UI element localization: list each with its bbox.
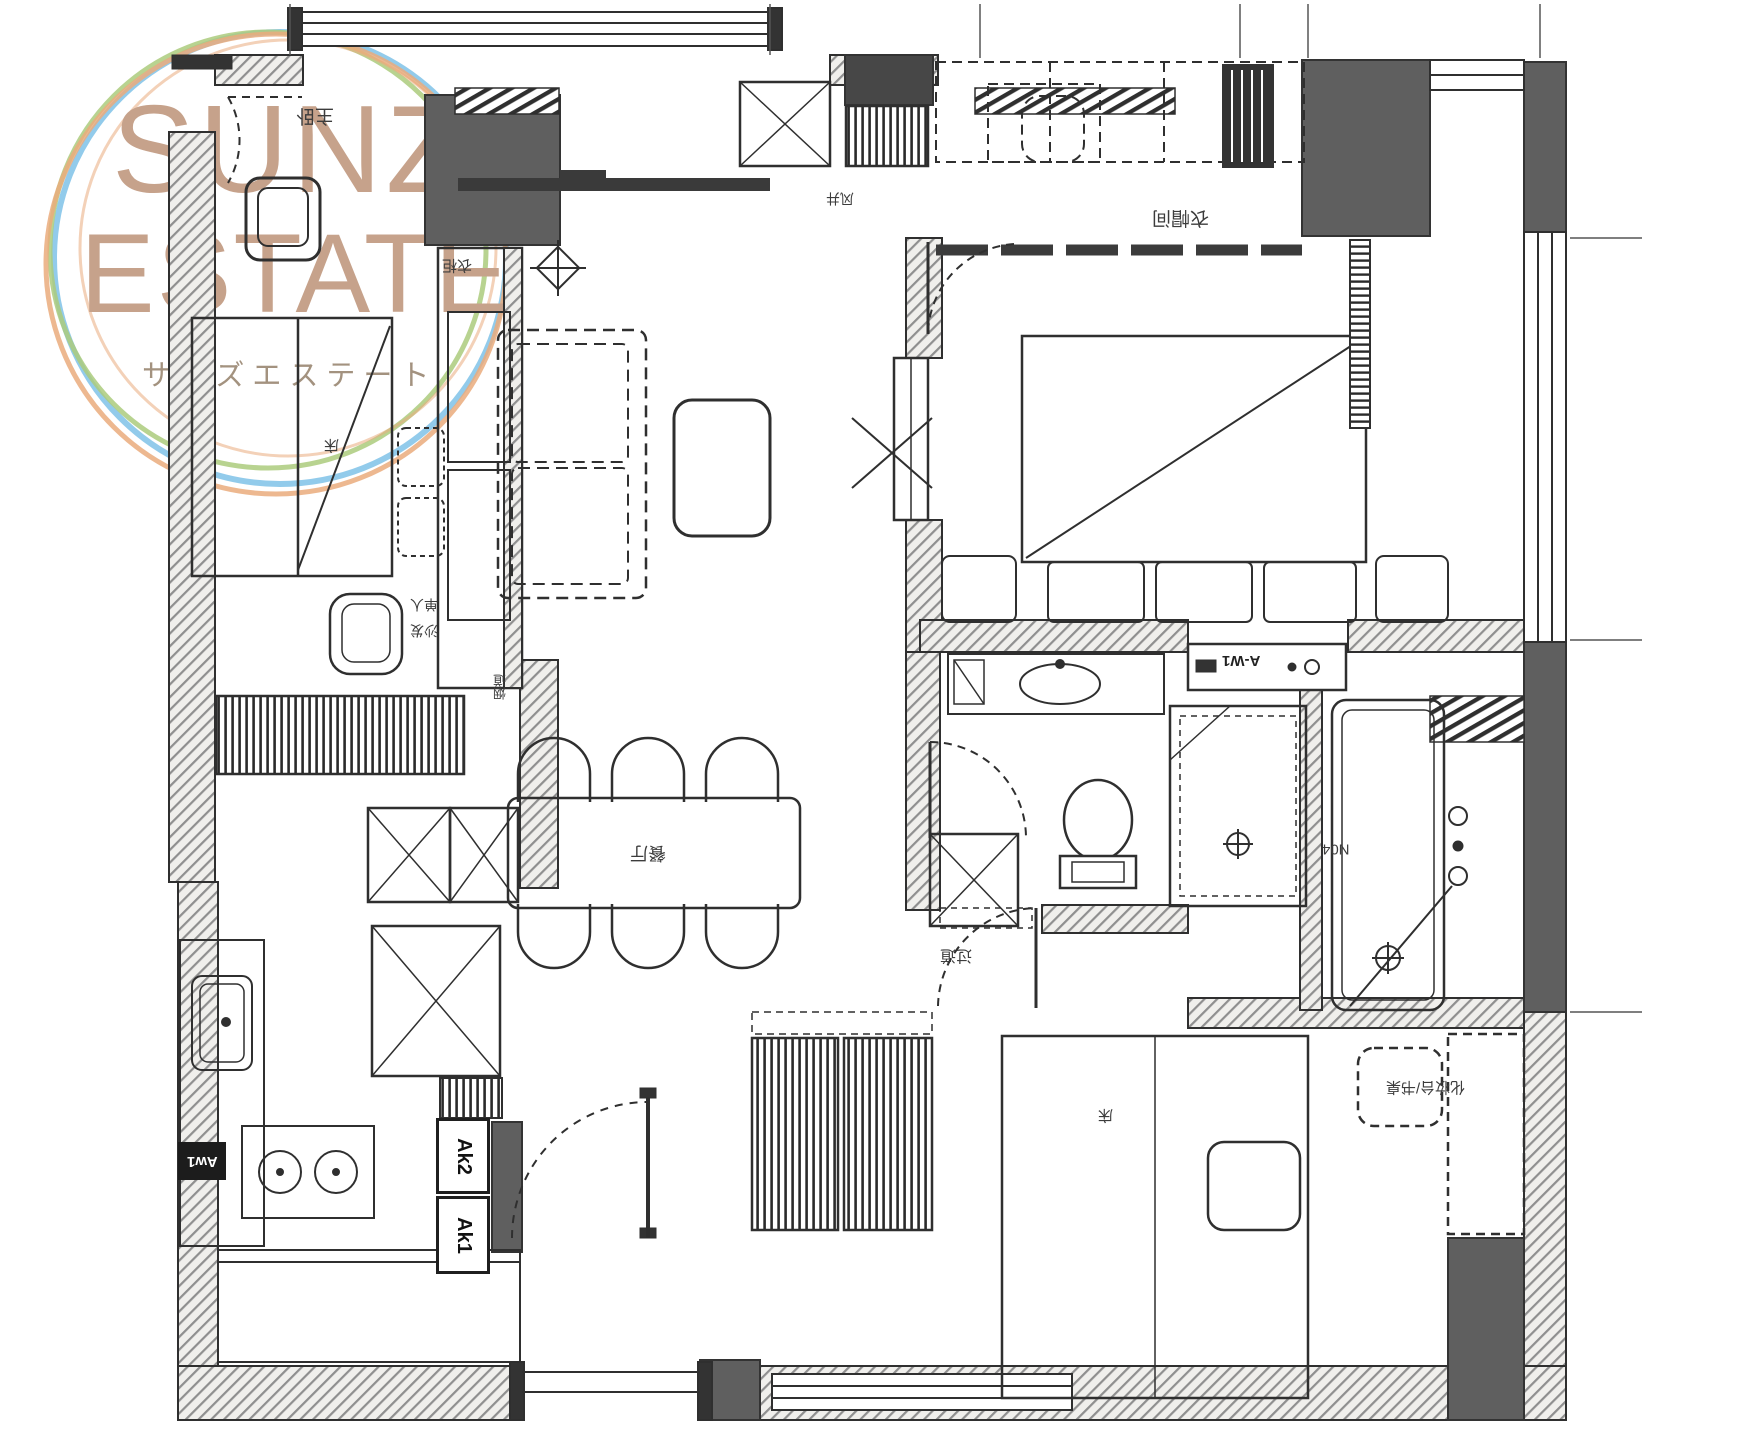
label-armchair-1: 单人 [410, 596, 438, 611]
label-armchair-2: 沙发 [410, 622, 438, 637]
label-ak1: Ak1 [436, 1196, 490, 1274]
label-aw1: Aw1 [178, 1142, 226, 1180]
label-master-bedroom: 主卧 [296, 104, 334, 125]
plan-labels: 主卧 床 衣柜 单人 沙发 烟道 风井 衣帽间 餐厅 过道 床 化妆台/书桌 N… [0, 0, 1748, 1440]
label-a-w1: A-W1 [1222, 652, 1260, 669]
label-second-bed: 床 [1098, 1106, 1113, 1123]
label-room-number: N04 [1322, 840, 1350, 857]
label-vent-shaft: 风井 [826, 190, 854, 205]
label-master-bed: 床 [324, 436, 339, 453]
label-hallway: 过道 [940, 946, 972, 964]
label-ak2: Ak2 [436, 1118, 490, 1194]
label-dresser-desk: 化妆台/书桌 [1386, 1078, 1465, 1095]
label-walkin-closet: 衣帽间 [1152, 206, 1209, 227]
floor-plan-page: SUNZ ESTATE サンズエステート [0, 0, 1748, 1440]
label-wardrobe: 衣柜 [442, 256, 472, 273]
label-flue: 烟道 [494, 674, 508, 700]
label-dining: 餐厅 [630, 842, 666, 862]
